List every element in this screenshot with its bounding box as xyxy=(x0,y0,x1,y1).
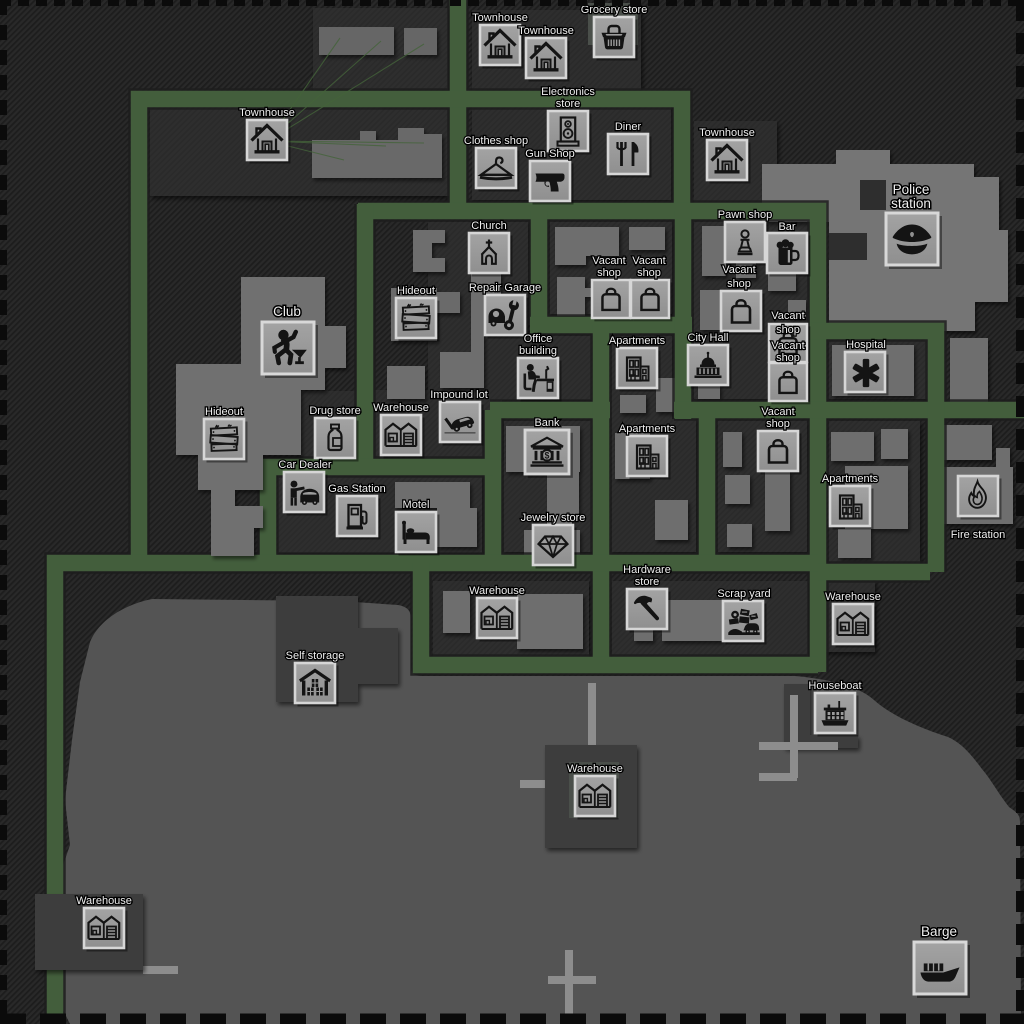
svg-text:City Hall: City Hall xyxy=(688,332,729,344)
svg-text:Hideout: Hideout xyxy=(205,406,243,418)
svg-text:Vacant: Vacant xyxy=(761,406,794,418)
svg-text:Warehouse: Warehouse xyxy=(567,763,623,775)
svg-text:Townhouse: Townhouse xyxy=(472,12,528,24)
svg-text:Warehouse: Warehouse xyxy=(469,585,525,597)
svg-text:Church: Church xyxy=(471,220,506,232)
svg-text:Car Dealer: Car Dealer xyxy=(278,459,332,471)
svg-text:Hardware: Hardware xyxy=(623,564,671,576)
svg-text:Vacant: Vacant xyxy=(722,264,755,276)
svg-text:shop: shop xyxy=(766,418,790,430)
svg-text:shop: shop xyxy=(597,267,621,279)
svg-text:Police: Police xyxy=(893,182,930,197)
svg-text:Vacant: Vacant xyxy=(632,255,665,267)
svg-text:building: building xyxy=(519,345,557,357)
svg-text:Warehouse: Warehouse xyxy=(76,895,132,907)
svg-text:Fire station: Fire station xyxy=(951,529,1005,541)
svg-text:Apartments: Apartments xyxy=(822,473,879,485)
svg-text:Vacant: Vacant xyxy=(592,255,625,267)
svg-text:Gun Shop: Gun Shop xyxy=(525,148,575,160)
svg-text:Hospital: Hospital xyxy=(846,339,886,351)
svg-text:Warehouse: Warehouse xyxy=(373,402,429,414)
svg-text:Diner: Diner xyxy=(615,121,642,133)
svg-text:Bank: Bank xyxy=(534,417,560,429)
svg-text:Bar: Bar xyxy=(778,221,795,233)
svg-text:Townhouse: Townhouse xyxy=(699,127,755,139)
svg-text:Repair Garage: Repair Garage xyxy=(469,282,541,294)
svg-text:Self storage: Self storage xyxy=(286,650,345,662)
svg-text:Scrap yard: Scrap yard xyxy=(717,588,770,600)
svg-text:shop: shop xyxy=(637,267,661,279)
svg-text:Electronics: Electronics xyxy=(541,86,595,98)
svg-text:Hideout: Hideout xyxy=(397,285,435,297)
svg-text:Jewelry store: Jewelry store xyxy=(521,512,586,524)
svg-text:Houseboat: Houseboat xyxy=(808,680,861,692)
svg-text:store: store xyxy=(556,98,580,110)
svg-text:Vacant: Vacant xyxy=(771,310,804,322)
svg-text:shop: shop xyxy=(727,278,751,290)
svg-text:Gas Station: Gas Station xyxy=(328,483,385,495)
svg-text:Warehouse: Warehouse xyxy=(825,591,881,603)
svg-text:Impound lot: Impound lot xyxy=(430,389,487,401)
svg-text:Office: Office xyxy=(524,333,553,345)
svg-text:Vacant: Vacant xyxy=(771,340,804,352)
svg-text:Apartments: Apartments xyxy=(609,335,666,347)
svg-text:shop: shop xyxy=(776,324,800,336)
svg-text:Pawn shop: Pawn shop xyxy=(718,209,772,221)
svg-text:Drug store: Drug store xyxy=(309,405,360,417)
svg-text:Motel: Motel xyxy=(403,499,430,511)
svg-text:store: store xyxy=(635,576,659,588)
svg-text:Townhouse: Townhouse xyxy=(518,25,574,37)
svg-text:shop: shop xyxy=(776,352,800,364)
svg-text:Townhouse: Townhouse xyxy=(239,107,295,119)
svg-text:Apartments: Apartments xyxy=(619,423,676,435)
svg-text:Barge: Barge xyxy=(921,924,957,939)
svg-text:station: station xyxy=(891,196,931,211)
svg-text:Clothes shop: Clothes shop xyxy=(464,135,528,147)
svg-text:Club: Club xyxy=(273,304,301,319)
